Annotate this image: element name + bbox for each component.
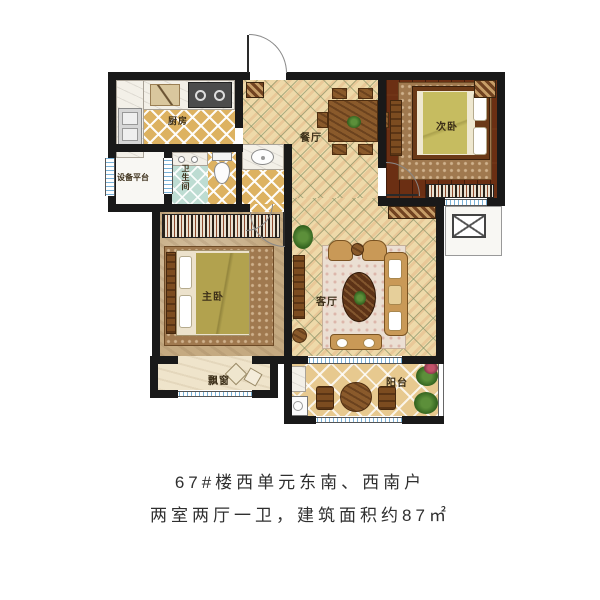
balcony-plant-icon [414,392,438,414]
wall [252,390,278,398]
ac-unit-icon [452,214,486,238]
living-shoe-cabinet [388,206,436,219]
side-table [351,243,364,256]
wall [108,72,250,80]
wall [235,80,243,128]
room-label-bathroom: 卫生间 [180,164,191,191]
cushion [363,338,375,348]
sofa [384,252,408,336]
balcony-bottom-window [316,417,402,423]
pillow [179,256,192,289]
burner-icon [214,90,225,101]
basin-nook-floor [242,170,284,204]
equipment-left-window [105,158,115,196]
washer-drum [293,401,303,411]
pillow [473,127,487,155]
dining-chair [332,88,347,99]
washbasin-icon [251,149,274,165]
wall [284,144,292,212]
wall [284,212,292,360]
wall [108,144,243,152]
coffee-table [342,272,376,322]
cushion [388,285,402,305]
faucet-icon [178,156,185,163]
equipment-right-window [163,158,173,194]
living-balcony-window [308,357,402,364]
stove-icon [188,82,232,108]
dining-chair [317,112,328,128]
cushion [388,311,402,331]
kitchen-sink-icon [118,108,142,146]
burner-icon [195,90,206,101]
drain-icon [261,156,265,160]
dining-chair [332,144,347,155]
balcony-railing [438,364,444,418]
dining-chair [358,88,373,99]
bedroom2-nightstand [474,80,496,98]
wall [252,356,284,364]
wall [108,204,250,212]
wall [436,198,444,364]
bedroom2-wardrobe [426,184,494,198]
living-stool [292,328,307,343]
room-label-bay: 飘窗 [208,372,230,387]
sink-basin [122,128,138,141]
caption-line-1: 67#楼西单元东南、西南户 [0,468,600,493]
balcony-chair [316,386,334,410]
bench [330,334,382,350]
table-plant-icon [347,116,361,128]
balcony-table [340,382,372,412]
wall [378,198,445,206]
bedroom2-ac-window [445,199,487,206]
room-label-balcony: 阳台 [386,374,408,389]
cushion [388,259,402,279]
wall [497,72,505,206]
balcony-chair [378,386,396,410]
wall [150,390,178,398]
pillow [179,295,192,328]
floor-plan: 厨房 餐厅 次卧 设备平台 卫生间 主卧 客厅 飘窗 阳台 67#楼西单元东南、… [0,0,600,600]
cutting-board [150,84,180,106]
tv-cabinet [293,255,305,319]
wall [152,212,160,360]
wall [284,416,316,424]
caption-line-2: 两室两厅一卫，建筑面积约87㎡ [0,501,600,526]
room-label-living: 客厅 [316,293,338,308]
dining-chair [358,144,373,155]
armchair [328,240,353,261]
bay-bottom-window [178,391,252,397]
living-plant-icon [293,225,313,249]
wall [286,72,505,80]
wall [236,144,242,204]
master-headboard [166,252,176,334]
sink-basin [122,112,138,125]
wall [284,356,292,424]
entry-door-arc [249,34,287,73]
cushion [336,338,348,348]
wall [378,72,386,168]
room-label-equipment: 设备平台 [117,172,149,183]
table-plant-icon [354,291,366,305]
room-label-dining: 餐厅 [300,129,322,144]
toilet-icon [212,152,232,161]
foyer-cabinet [246,82,264,98]
room-label-master: 主卧 [202,288,224,303]
dining-table [328,100,378,142]
room-label-bedroom2: 次卧 [436,118,458,133]
bedroom2-cabinet [390,100,402,156]
wall [402,416,444,424]
faucet-icon [191,156,198,163]
room-label-kitchen: 厨房 [168,114,188,127]
wall [487,198,505,206]
